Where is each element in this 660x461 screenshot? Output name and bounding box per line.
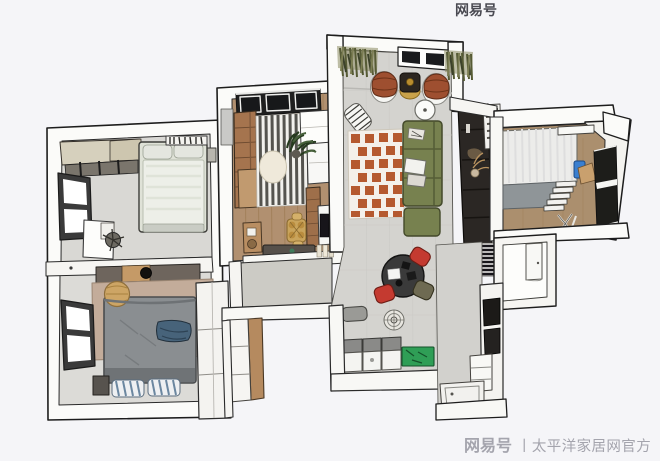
svg-text:丨太平洋家居网官方: 丨太平洋家居网官方: [517, 438, 651, 455]
svg-text:网易号: 网易号: [455, 2, 497, 18]
svg-text:网易号: 网易号: [464, 437, 512, 455]
